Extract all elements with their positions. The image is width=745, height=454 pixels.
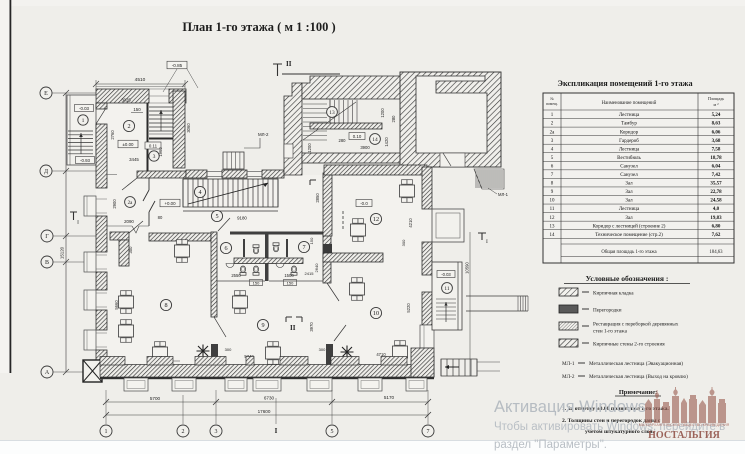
svg-text:0.11: 0.11: [149, 143, 158, 148]
svg-text:4210: 4210: [408, 218, 413, 228]
svg-text:280: 280: [391, 115, 396, 123]
svg-text:1200: 1200: [307, 143, 312, 153]
svg-text:+0.00: +0.00: [164, 201, 176, 206]
svg-text:1420: 1420: [384, 137, 389, 147]
svg-text:22,78: 22,78: [710, 190, 722, 195]
svg-text:2а: 2а: [550, 130, 556, 135]
svg-text:3060: 3060: [186, 123, 191, 133]
svg-text:Экспликация помещений 1-го эт: Экспликация помещений 1-го этажа: [557, 79, 692, 88]
svg-text:2640: 2640: [314, 263, 319, 273]
svg-text:Лестница: Лестница: [619, 207, 640, 212]
svg-text:стен 1-го этажа: стен 1-го этажа: [593, 329, 628, 335]
svg-text:13: 13: [550, 224, 556, 229]
svg-text:17600: 17600: [258, 409, 271, 414]
svg-text:13: 13: [329, 110, 335, 116]
svg-text:5: 5: [331, 429, 334, 435]
svg-text:Вестибюль: Вестибюль: [617, 156, 641, 161]
svg-text:Зал: Зал: [625, 199, 633, 204]
svg-text:Условные обозначения :: Условные обозначения :: [586, 274, 669, 283]
svg-text:8: 8: [164, 302, 167, 309]
svg-text:помещ.: помещ.: [546, 102, 558, 106]
svg-text:1200: 1200: [380, 108, 385, 118]
svg-text:А: А: [45, 370, 50, 376]
svg-text:7,62: 7,62: [712, 233, 721, 238]
svg-text:35,57: 35,57: [710, 182, 722, 187]
svg-text:МЛ-2: МЛ-2: [258, 132, 269, 137]
svg-text:15120: 15120: [60, 246, 65, 259]
svg-text:2: 2: [127, 123, 130, 130]
svg-text:Наименование помещений: Наименование помещений: [602, 101, 657, 106]
svg-text:7: 7: [302, 244, 305, 251]
svg-text:2: 2: [182, 429, 185, 435]
svg-text:1: 1: [105, 429, 108, 435]
svg-text:5700: 5700: [150, 396, 161, 401]
svg-text:9180: 9180: [237, 216, 247, 221]
svg-text:м ²: м ²: [714, 102, 720, 107]
svg-text:В: В: [45, 260, 49, 266]
svg-text:Е: Е: [44, 91, 48, 97]
svg-text:300: 300: [401, 239, 406, 246]
svg-text:6,06: 6,06: [712, 130, 721, 135]
svg-text:5: 5: [215, 213, 218, 220]
svg-text:5,24: 5,24: [712, 113, 721, 118]
svg-text:3900: 3900: [360, 145, 370, 150]
svg-text:4510: 4510: [135, 77, 146, 83]
svg-text:2850: 2850: [315, 193, 320, 203]
svg-text:Зал: Зал: [625, 182, 633, 187]
svg-text:3025: 3025: [121, 98, 131, 103]
svg-text:4,0: 4,0: [713, 207, 720, 212]
svg-text:1500: 1500: [284, 273, 294, 278]
svg-text:Лестница: Лестница: [619, 113, 640, 118]
svg-text:Перегородки: Перегородки: [593, 308, 622, 314]
svg-text:I: I: [275, 427, 278, 435]
svg-text:МАЛОАРХАНГЕЛЬСКОЕ ОБЩЕСТВО К: МАЛОАРХАНГЕЛЬСКОЕ ОБЩЕСТВО КРАЕВЕДЕНИЯ: [639, 423, 730, 427]
svg-text:184,63: 184,63: [709, 250, 723, 255]
svg-text:3,68: 3,68: [712, 139, 721, 144]
svg-text:2900: 2900: [112, 199, 117, 209]
svg-text:1960: 1960: [158, 147, 163, 157]
svg-text:Г: Г: [45, 234, 49, 240]
svg-text:150: 150: [133, 107, 141, 112]
svg-text:НОСТАЛЬГИЯ: НОСТАЛЬГИЯ: [648, 430, 720, 441]
svg-text:Техническое помещение (стр.2): Техническое помещение (стр.2): [595, 233, 663, 238]
svg-text:I: I: [486, 239, 488, 245]
svg-text:МЛ-1: МЛ-1: [562, 361, 575, 367]
svg-text:0.10: 0.10: [353, 134, 362, 139]
svg-text:Металлическая лестница (Выход: Металлическая лестница (Выход на кровлю): [589, 373, 688, 380]
svg-text:Санузел: Санузел: [620, 173, 638, 178]
svg-text:2а: 2а: [128, 201, 134, 206]
svg-text:2090: 2090: [124, 219, 134, 224]
svg-text:2550: 2550: [231, 273, 241, 278]
svg-text:Кирпичные стены 2-го строения: Кирпичные стены 2-го строения: [593, 342, 665, 348]
svg-text:3: 3: [153, 154, 156, 160]
svg-text:II: II: [290, 324, 296, 332]
svg-text:-0.03: -0.03: [79, 106, 90, 111]
svg-text:14: 14: [550, 233, 556, 238]
svg-text:300: 300: [225, 347, 232, 352]
svg-text:№: №: [550, 97, 554, 101]
svg-text:7: 7: [427, 429, 430, 435]
svg-text:Лестница: Лестница: [619, 147, 640, 152]
svg-text:80: 80: [158, 215, 163, 220]
svg-text:5170: 5170: [384, 395, 395, 400]
svg-text:11: 11: [550, 207, 555, 212]
svg-text:300: 300: [128, 246, 133, 254]
svg-text:7,42: 7,42: [712, 173, 721, 178]
svg-text:10: 10: [373, 310, 379, 317]
svg-text:Примечание:: Примечание:: [619, 389, 657, 396]
svg-text:-0.0: -0.0: [360, 201, 368, 206]
svg-text:Зал: Зал: [625, 216, 633, 221]
svg-text:Активация Windows: Активация Windows: [494, 398, 646, 416]
svg-text:1: 1: [82, 118, 85, 124]
svg-text:14: 14: [372, 137, 378, 143]
svg-text:280: 280: [339, 138, 347, 143]
svg-text:6,80: 6,80: [712, 224, 721, 229]
svg-text:±0.00: ±0.00: [123, 142, 135, 147]
svg-text:9: 9: [261, 322, 264, 329]
svg-text:II: II: [286, 60, 292, 68]
svg-text:Металлическая лестница (Эвакуа: Металлическая лестница (Эвакуационная): [589, 360, 683, 367]
svg-text:3445: 3445: [129, 157, 139, 162]
svg-text:Санузел: Санузел: [620, 164, 638, 169]
svg-text:Коридор: Коридор: [620, 130, 639, 135]
svg-text:11: 11: [444, 286, 449, 292]
svg-text:2415: 2415: [305, 271, 315, 276]
svg-text:Тамбур: Тамбур: [621, 122, 637, 127]
svg-text:6: 6: [224, 245, 227, 252]
svg-text:-0.03: -0.03: [441, 272, 451, 277]
svg-text:Общая площадь 1-го этажа: Общая площадь 1-го этажа: [601, 250, 657, 255]
svg-text:12: 12: [373, 216, 379, 223]
svg-text:3970: 3970: [309, 322, 314, 332]
svg-text:-0.93: -0.93: [80, 158, 91, 163]
svg-text:12: 12: [550, 216, 556, 221]
svg-text:18,78: 18,78: [710, 156, 722, 161]
svg-text:2760: 2760: [110, 130, 115, 140]
svg-text:4: 4: [198, 189, 201, 196]
svg-text:19,83: 19,83: [710, 216, 722, 221]
svg-text:Зал: Зал: [625, 190, 633, 195]
svg-text:300: 300: [319, 347, 326, 352]
svg-text:5220: 5220: [406, 303, 411, 313]
svg-text:раздел "Параметры".: раздел "Параметры".: [494, 439, 607, 451]
svg-text:Д: Д: [44, 169, 48, 175]
svg-text:Гардероб: Гардероб: [619, 139, 639, 144]
svg-text:-0.85: -0.85: [172, 63, 183, 68]
svg-text:10: 10: [550, 199, 556, 204]
svg-text:3: 3: [215, 429, 218, 435]
svg-text:Коридор с лестницей (строение: Коридор с лестницей (строение 2): [593, 224, 666, 229]
svg-text:10590: 10590: [465, 262, 470, 274]
svg-text:8,63: 8,63: [712, 122, 721, 127]
svg-text:24,58: 24,58: [710, 199, 722, 204]
svg-text:МЛ-1: МЛ-1: [498, 192, 509, 197]
svg-text:150: 150: [309, 237, 314, 244]
svg-text:6730: 6730: [264, 396, 275, 401]
svg-text:Реставрация с переборкой дерев: Реставрация с переборкой деревянных: [593, 321, 679, 328]
svg-text:7,58: 7,58: [712, 147, 721, 152]
svg-text:План 1-го этажа ( м 1 :100 ): План 1-го этажа ( м 1 :100 ): [182, 20, 335, 34]
svg-text:6,04: 6,04: [712, 164, 721, 169]
svg-text:МЛ-2: МЛ-2: [562, 374, 575, 380]
svg-text:Кирпичная кладка: Кирпичная кладка: [593, 291, 634, 297]
svg-text:Площадь: Площадь: [708, 96, 724, 101]
